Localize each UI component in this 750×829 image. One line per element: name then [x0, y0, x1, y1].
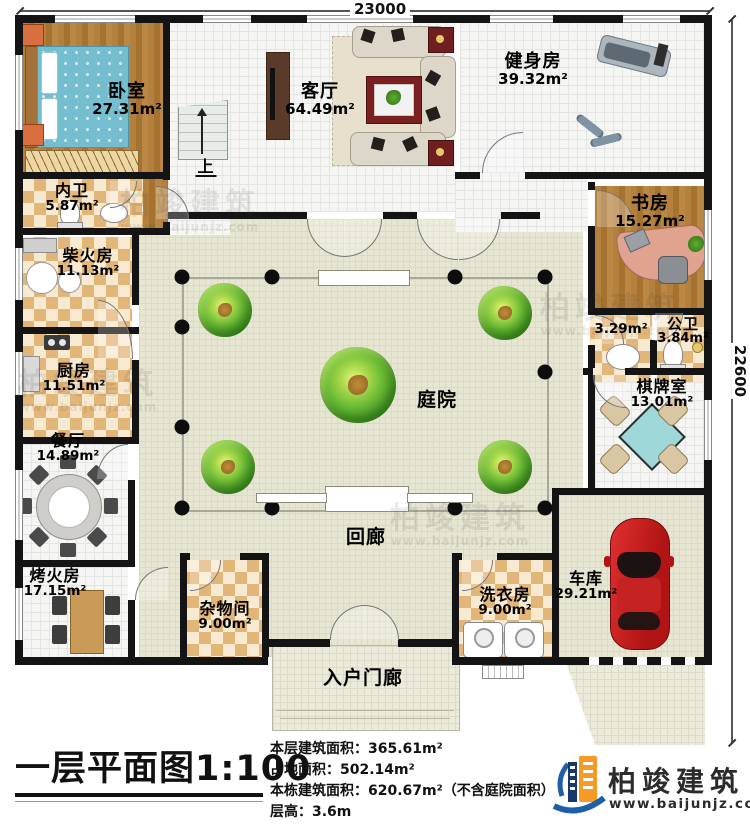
stairs-arrow-head — [197, 108, 207, 116]
wall — [455, 172, 480, 179]
public-bath-name: 公卫 — [657, 316, 708, 332]
chair — [105, 625, 120, 644]
dimension-width-label: 23000 — [350, 0, 410, 18]
room-label-firewood: 柴火房 11.13m² — [57, 247, 120, 279]
wall — [452, 553, 459, 657]
nightstand — [20, 24, 44, 46]
wall — [695, 657, 712, 665]
tree — [478, 286, 532, 340]
washing-machine-door — [515, 628, 535, 648]
wall — [552, 488, 712, 495]
chair — [60, 543, 76, 557]
heating-name: 烤火房 — [24, 567, 87, 584]
brand-name: 柏竣建筑 — [608, 760, 744, 800]
chair — [105, 596, 120, 615]
cooking-pot — [26, 262, 58, 294]
stove-burner — [48, 339, 55, 346]
study-area: 15.27m² — [615, 213, 685, 229]
washing-machine-door — [474, 628, 494, 648]
storage-name: 杂物间 — [198, 600, 251, 617]
wall — [15, 172, 168, 179]
wall — [588, 182, 595, 190]
wall — [588, 226, 595, 308]
laundry-name: 洗衣房 — [478, 586, 531, 603]
chair — [104, 498, 118, 514]
driveway — [548, 665, 705, 745]
window — [623, 15, 680, 23]
garage-area: 29.21m² — [555, 587, 618, 602]
car-rear-window — [618, 612, 660, 630]
dining-name: 餐厅 — [37, 432, 100, 449]
column — [538, 365, 553, 380]
room-label-corridor: 回廊 — [346, 527, 386, 548]
dining-table-top — [48, 486, 90, 528]
kitchen-name: 厨房 — [43, 362, 106, 379]
stat-footprint-area: 占地面积：502.14m² — [270, 760, 570, 781]
bench — [325, 486, 409, 512]
public-bath-area: 3.84m² — [657, 332, 708, 346]
bench-rail — [407, 493, 473, 503]
wall — [588, 375, 595, 488]
column — [175, 320, 190, 335]
brand-url: www.baijunjz.com — [609, 796, 750, 812]
wall — [15, 657, 268, 665]
brand-logo-icon — [552, 752, 606, 820]
wall — [452, 657, 575, 665]
tree — [478, 440, 532, 494]
room-label-gym: 健身房 39.32m² — [498, 52, 568, 88]
bedroom-area: 27.31m² — [92, 101, 162, 117]
stove-burner — [59, 339, 66, 346]
plan-title: 一层平面图1:100 — [15, 740, 311, 791]
office-chair — [658, 256, 688, 284]
bench-rail — [256, 493, 327, 503]
window — [15, 55, 23, 130]
living-area: 64.49m² — [285, 101, 355, 117]
wall — [625, 368, 712, 375]
room-label-courtyard: 庭院 — [417, 390, 457, 411]
stat-floor-area: 本层建筑面积：365.61m² — [270, 739, 570, 760]
wall — [132, 360, 139, 437]
side-table-ornament — [436, 35, 444, 43]
sofa — [420, 56, 456, 138]
bench — [318, 270, 410, 286]
corridor-name: 回廊 — [346, 527, 386, 548]
wall — [163, 15, 170, 180]
stairs-direction-arrow — [201, 112, 203, 154]
wall — [583, 368, 593, 375]
window — [15, 248, 23, 300]
tree — [320, 347, 396, 423]
room-label-laundry: 洗衣房 9.00m² — [478, 586, 531, 618]
wall — [552, 488, 559, 560]
car-windshield — [617, 552, 661, 578]
study-name: 书房 — [615, 194, 685, 213]
dimension-tick — [728, 739, 736, 747]
wall — [650, 340, 657, 375]
nightstand — [20, 124, 44, 146]
gym-area: 39.32m² — [498, 71, 568, 87]
window — [704, 210, 712, 280]
room-label-chess: 棋牌室 13.01m² — [631, 378, 694, 410]
window — [55, 15, 135, 23]
pillow — [41, 52, 58, 94]
wall — [128, 600, 135, 657]
wardrobe — [25, 150, 139, 173]
wall — [383, 212, 417, 219]
porch-name: 入户门廊 — [323, 668, 403, 689]
bedroom-name: 卧室 — [92, 82, 162, 101]
stat-total-area: 本栋建筑面积：620.67m²（不含庭院面积） — [270, 781, 570, 802]
kitchen-sink — [23, 356, 40, 392]
wall — [552, 553, 559, 657]
dining-area: 14.89m² — [37, 449, 100, 464]
table — [70, 590, 104, 654]
stat-floor-height: 层高：3.6m — [270, 802, 570, 823]
porch-step-line — [276, 710, 454, 711]
room-label-bedroom: 卧室 27.31m² — [92, 82, 162, 118]
gym-name: 健身房 — [498, 52, 568, 71]
kitchen-area: 11.51m² — [43, 379, 106, 394]
wall — [398, 639, 458, 647]
living-name: 客厅 — [285, 82, 355, 101]
building-stats: 本层建筑面积：365.61m² 占地面积：502.14m² 本栋建筑面积：620… — [270, 739, 570, 823]
wall — [588, 308, 712, 315]
window — [490, 15, 553, 23]
inner-bath-name: 内卫 — [45, 182, 98, 199]
room-label-living: 客厅 64.49m² — [285, 82, 355, 118]
porch-step-line — [280, 718, 450, 719]
wall — [15, 228, 170, 235]
title-underline-thin — [15, 801, 263, 802]
window — [15, 588, 23, 640]
wall — [128, 480, 135, 560]
tree — [198, 283, 252, 337]
dimension-height-label: 22600 — [731, 343, 749, 399]
dimension-tick — [706, 7, 714, 15]
room-label-kitchen: 厨房 11.51m² — [43, 362, 106, 394]
floor-plan-canvas: 柏竣建筑 www.baijunjz.com 柏竣建筑 www.baijunjz.… — [0, 0, 750, 829]
wall — [180, 553, 187, 657]
column — [448, 270, 463, 285]
wall — [132, 235, 139, 305]
garage-name: 车库 — [555, 570, 618, 587]
room-label-dining: 餐厅 14.89m² — [37, 432, 100, 464]
wall — [268, 639, 330, 647]
counter — [23, 238, 57, 253]
heating-area: 17.15m² — [24, 584, 87, 599]
stairs-up-label: 上 — [195, 158, 216, 177]
firewood-name: 柴火房 — [57, 247, 120, 264]
exterior-step — [482, 665, 524, 679]
car-mirror — [667, 556, 674, 567]
window — [203, 15, 251, 23]
room-label-washroom: 3.29m² — [594, 322, 647, 337]
tree — [201, 440, 255, 494]
column — [175, 270, 190, 285]
tv — [270, 68, 275, 120]
chess-area: 13.01m² — [631, 395, 694, 410]
car-roof — [617, 578, 661, 612]
inner-bath-area: 5.87m² — [45, 199, 98, 214]
room-label-public-bath: 公卫 3.84m² — [657, 316, 708, 346]
room-label-porch: 入户门廊 — [323, 668, 403, 689]
column — [538, 501, 553, 516]
room-label-heating: 烤火房 17.15m² — [24, 567, 87, 599]
room-label-inner-bath: 内卫 5.87m² — [45, 182, 98, 214]
stairs-label: 上 — [195, 158, 216, 177]
washbasin — [606, 344, 640, 370]
wall — [497, 553, 559, 560]
side-table-ornament — [436, 148, 444, 156]
window — [15, 352, 23, 395]
room-label-storage: 杂物间 9.00m² — [198, 600, 251, 632]
courtyard-name: 庭院 — [417, 390, 457, 411]
window — [15, 470, 23, 540]
cushion — [391, 28, 405, 42]
car-mirror — [604, 556, 611, 567]
chess-name: 棋牌室 — [631, 378, 694, 395]
column — [175, 501, 190, 516]
washroom-area: 3.29m² — [594, 322, 647, 337]
column — [538, 270, 553, 285]
wall — [262, 553, 269, 657]
column — [175, 420, 190, 435]
wall — [588, 345, 595, 368]
window — [704, 400, 712, 460]
wall — [501, 212, 540, 219]
laundry-area: 9.00m² — [478, 603, 531, 618]
firewood-area: 11.13m² — [57, 264, 120, 279]
storage-area: 9.00m² — [198, 617, 251, 632]
room-label-study: 书房 15.27m² — [615, 194, 685, 230]
room-label-garage: 车库 29.21m² — [555, 570, 618, 602]
wall — [525, 172, 712, 179]
chair — [52, 625, 67, 644]
garage-door-dashed — [575, 657, 695, 665]
column — [265, 270, 280, 285]
title-underline — [15, 793, 263, 797]
